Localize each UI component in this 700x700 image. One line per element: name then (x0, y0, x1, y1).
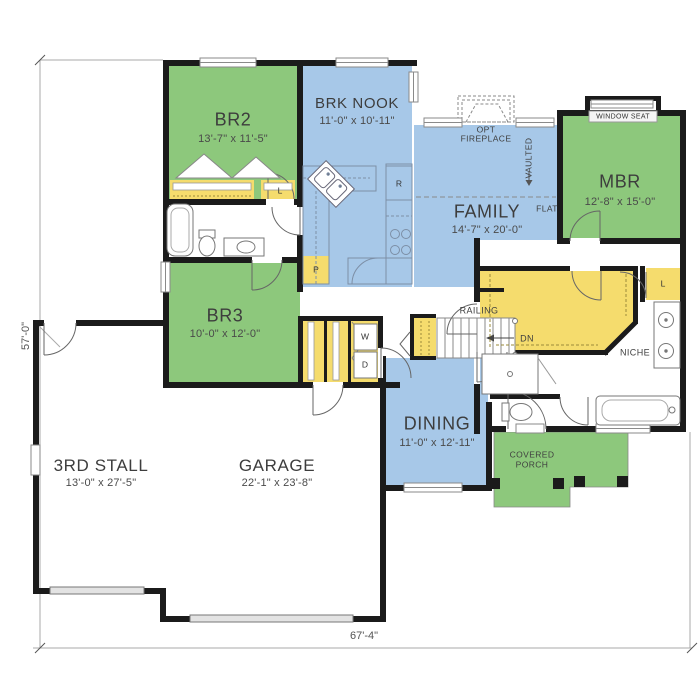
dining-label: DINING (404, 415, 471, 434)
opt-fireplace-label-2: FIREPLACE (461, 135, 512, 144)
br2-label: BR2 (215, 111, 252, 130)
railing-label: RAILING (460, 306, 499, 315)
family-label: FAMILY (454, 203, 520, 222)
garage-door-3rd-stall (50, 587, 144, 594)
dn-label: DN (520, 334, 534, 343)
window-seat-label: WINDOW SEAT (596, 113, 650, 120)
overall-depth-dimension: 57'-0" (21, 322, 33, 350)
newel-post (513, 319, 518, 324)
br2-dims: 13'-7" x 11'-5" (198, 134, 268, 146)
brk-nook-dims: 11'-0" x 10'-11" (319, 116, 394, 128)
covered-porch-label-2: PORCH (516, 461, 549, 470)
washer-label: W (361, 333, 369, 342)
third-stall-dims: 13'-0" x 27'-5" (66, 478, 137, 490)
br3-label: BR3 (207, 307, 244, 326)
linen-master-label: L (661, 280, 666, 289)
garage-label: GARAGE (239, 457, 315, 475)
hall-to-garage-door (313, 385, 343, 415)
master-toilet (502, 403, 509, 421)
dining-dims: 11'-0" x 12'-11" (399, 438, 474, 450)
covered-porch-label-1: COVERED (510, 451, 555, 460)
hall-bath-door (272, 207, 300, 235)
pantry-label: P (313, 266, 319, 275)
toilet-room-door (560, 397, 588, 425)
floor-plan: BR2 13'-7" x 11'-5" BRK NOOK 11'-0" x 10… (0, 0, 700, 700)
garage-door-main (190, 615, 353, 622)
overall-width-dimension: 67'-4" (350, 631, 378, 643)
br3-dims: 10'-0" x 12'-0" (190, 329, 261, 341)
third-stall-label: 3RD STALL (54, 457, 149, 475)
covered-porch-area (494, 432, 628, 507)
mbr-dims: 12'-8" x 15'-0" (585, 197, 656, 209)
optional-fireplace-outline (458, 96, 514, 122)
brk-nook-label: BRK NOOK (315, 96, 399, 112)
linen-hall-label: L (278, 187, 283, 196)
garage-entry-door (44, 323, 76, 355)
flat-label: FLAT (536, 205, 558, 214)
stair-pantry (414, 318, 436, 358)
niche-label: NICHE (620, 348, 650, 357)
mbr-label: MBR (599, 173, 641, 192)
garage-dims: 22'-1" x 23'-8" (242, 478, 313, 490)
family-dims: 14'-7" x 20'-0" (452, 225, 523, 237)
vaulted-label: VAULTED (525, 138, 534, 179)
refrigerator-label: R (396, 180, 402, 189)
dryer-label: D (362, 361, 368, 370)
pantry-door (400, 332, 410, 356)
